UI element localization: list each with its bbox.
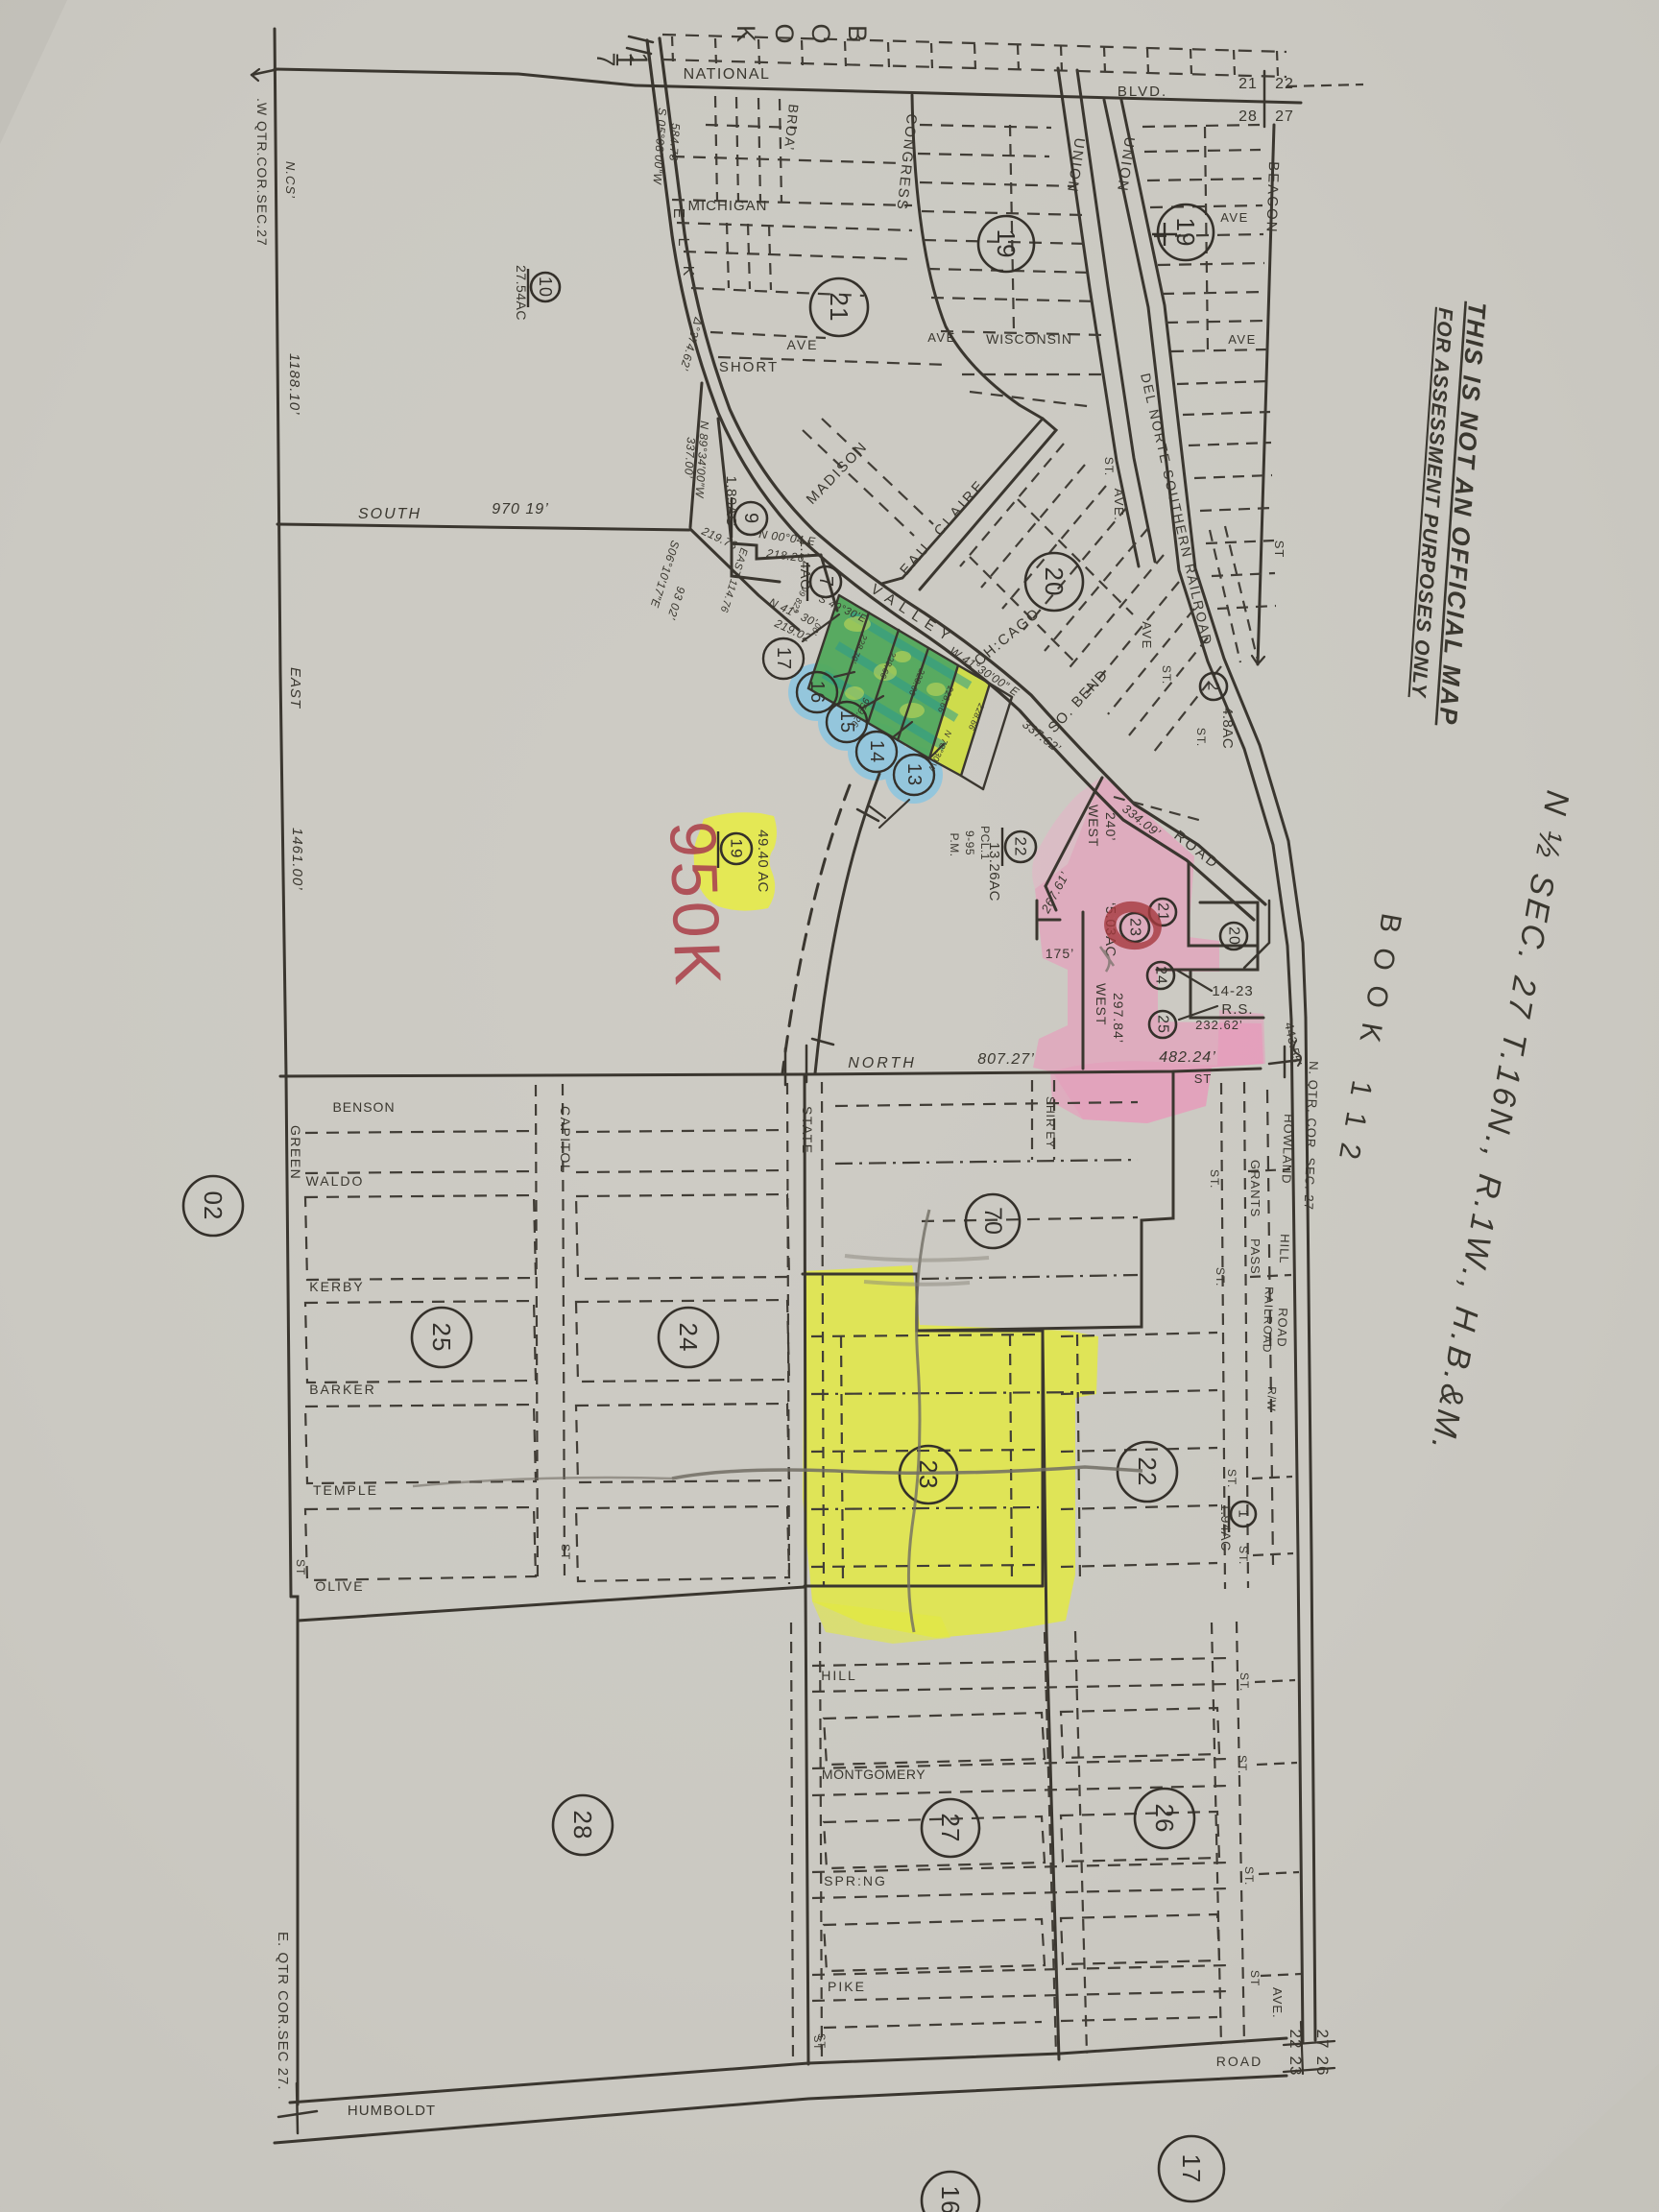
svg-text:ROAD: ROAD <box>1216 2054 1262 2069</box>
svg-text:AVE: AVE <box>1220 210 1249 225</box>
svg-text:ST.: ST. <box>1242 1866 1256 1886</box>
svg-text:1461.00’: 1461.00’ <box>289 828 305 891</box>
svg-text:AVE.: AVE. <box>1270 1987 1285 2019</box>
svg-text:BEACON: BEACON <box>1262 161 1282 234</box>
svg-text:ST: ST <box>1272 541 1286 559</box>
svg-text:17: 17 <box>773 647 794 670</box>
svg-text:R.S.: R.S. <box>1221 1001 1253 1018</box>
svg-text:970 19’: 970 19’ <box>492 501 549 517</box>
svg-text:27.54AC: 27.54AC <box>514 265 529 321</box>
svg-text:SHIR’EY: SHIR’EY <box>1044 1096 1057 1148</box>
svg-text:N.CS’: N.CS’ <box>283 161 298 199</box>
svg-text:13: 13 <box>903 763 925 786</box>
svg-text:1.89AC: 1.89AC <box>723 475 739 526</box>
svg-text:ST.: ST. <box>1225 1469 1238 1488</box>
svg-text:SOUTH: SOUTH <box>358 506 421 522</box>
svg-text:1188.10’: 1188.10’ <box>286 353 302 415</box>
svg-text:20: 20 <box>1226 926 1242 946</box>
svg-text:PIKE: PIKE <box>828 1979 866 1994</box>
svg-text:HOWLAND: HOWLAND <box>1279 1114 1296 1185</box>
svg-text:4.8AC: 4.8AC <box>1219 707 1236 749</box>
svg-text:950K: 950K <box>656 820 734 990</box>
svg-text:9-95: 9-95 <box>963 830 976 855</box>
svg-text:28: 28 <box>568 1811 597 1840</box>
svg-text:02: 02 <box>199 1191 228 1221</box>
svg-text:175’: 175’ <box>1046 946 1074 961</box>
svg-text:E: E <box>670 208 686 219</box>
svg-text:WISCONSIN: WISCONSIN <box>986 331 1072 347</box>
svg-text:14: 14 <box>866 740 887 763</box>
svg-text:B: B <box>843 25 872 42</box>
svg-text:WALDO: WALDO <box>306 1173 365 1189</box>
svg-text:17: 17 <box>1177 2154 1206 2184</box>
svg-text:20: 20 <box>1040 567 1069 597</box>
svg-text:ST.: ST. <box>1214 1267 1227 1286</box>
svg-text:P.M.: P.M. <box>948 832 961 856</box>
svg-text:ROAD: ROAD <box>1275 1308 1290 1348</box>
svg-text:CAPITOL: CAPITOL <box>558 1106 573 1173</box>
svg-text:22: 22 <box>1275 76 1294 92</box>
svg-text:2: 2 <box>1205 682 1223 691</box>
svg-text:PCL.1: PCL.1 <box>978 826 992 860</box>
svg-text:O: O <box>806 23 835 43</box>
svg-text:GRANTS: GRANTS <box>1248 1160 1262 1217</box>
svg-text:AVE.: AVE. <box>1112 489 1126 522</box>
svg-text:27: 27 <box>936 1814 965 1843</box>
svg-text:NORTH: NORTH <box>848 1055 917 1071</box>
svg-text:22: 22 <box>1286 2030 1305 2050</box>
svg-text:R/W: R/W <box>1264 1386 1279 1412</box>
svg-text:19: 19 <box>1171 218 1200 248</box>
svg-text:297.84’: 297.84’ <box>1111 993 1126 1044</box>
svg-text:ST.: ST. <box>1236 1755 1249 1774</box>
svg-text:21: 21 <box>1238 76 1258 92</box>
svg-text:NATIONAL: NATIONAL <box>684 66 771 83</box>
svg-text:L: L <box>675 238 691 247</box>
svg-text:16: 16 <box>806 681 828 704</box>
svg-text:19: 19 <box>992 229 1021 259</box>
svg-text:E. QTR COR.SEC 27.: E. QTR COR.SEC 27. <box>275 1932 291 2091</box>
svg-text:232.62’: 232.62’ <box>1195 1018 1243 1032</box>
svg-text:HUMBOLDT: HUMBOLDT <box>348 2103 436 2119</box>
svg-text:26: 26 <box>1150 1804 1179 1834</box>
svg-text:23: 23 <box>1286 2056 1305 2077</box>
svg-text:BARKER: BARKER <box>309 1382 376 1397</box>
svg-text:ST: ST <box>811 2035 823 2051</box>
svg-text:SPR:NG: SPR:NG <box>824 1873 887 1888</box>
svg-text:EAST: EAST <box>287 667 303 709</box>
svg-text:ST.: ST. <box>1238 1672 1251 1692</box>
svg-text:BLVD.: BLVD. <box>1118 84 1167 100</box>
svg-text:27: 27 <box>1275 108 1294 125</box>
svg-text:ST.: ST. <box>1194 728 1208 747</box>
svg-text:7: 7 <box>591 52 620 66</box>
svg-text:HILL: HILL <box>821 1668 857 1683</box>
svg-text:ST: ST <box>1248 1970 1262 1986</box>
svg-text:25: 25 <box>427 1323 456 1353</box>
svg-text:BENSON: BENSON <box>332 1099 395 1115</box>
svg-text:28: 28 <box>1238 108 1258 125</box>
svg-text:482.24’: 482.24’ <box>1159 1049 1216 1066</box>
svg-text:ST.: ST. <box>1237 1546 1250 1565</box>
svg-text:AVE: AVE <box>1140 621 1154 650</box>
svg-text:25: 25 <box>1155 1015 1171 1034</box>
svg-text:26: 26 <box>1313 2056 1332 2077</box>
svg-text:K: K <box>732 25 760 42</box>
svg-text:MICHIGAN: MICHIGAN <box>688 198 768 214</box>
svg-text:AVE: AVE <box>927 330 956 345</box>
svg-text:584.78: 584.78 <box>666 123 683 162</box>
svg-text:240’: 240’ <box>1103 812 1118 841</box>
svg-text:24: 24 <box>1153 966 1169 985</box>
svg-text:KERBY: KERBY <box>309 1279 364 1294</box>
svg-text:22: 22 <box>1012 837 1030 857</box>
svg-text:AVE: AVE <box>787 337 819 352</box>
svg-text:1.94AC: 1.94AC <box>1218 1503 1234 1551</box>
svg-text:PASS: PASS <box>1248 1238 1262 1275</box>
svg-text:ST.: ST. <box>1102 457 1116 476</box>
svg-text:SHORT: SHORT <box>719 359 779 375</box>
svg-text:21: 21 <box>825 293 854 323</box>
svg-text:9: 9 <box>740 513 761 524</box>
svg-text:24: 24 <box>674 1323 703 1353</box>
svg-text:HILL: HILL <box>1277 1234 1292 1264</box>
svg-text:STATE: STATE <box>800 1106 815 1155</box>
svg-text:MONTGOMERY: MONTGOMERY <box>822 1767 926 1782</box>
svg-text:16: 16 <box>936 2186 965 2212</box>
svg-text:O: O <box>770 23 799 43</box>
svg-text:AVE: AVE <box>1228 332 1257 347</box>
svg-text:K: K <box>680 266 696 276</box>
svg-text:1: 1 <box>1236 1509 1252 1518</box>
svg-text:7: 7 <box>815 576 836 588</box>
svg-text:ST: ST <box>294 1559 307 1575</box>
svg-text:23: 23 <box>1127 918 1143 937</box>
svg-text:14-23: 14-23 <box>1212 983 1253 999</box>
svg-text:OLIVE: OLIVE <box>315 1578 364 1594</box>
svg-text:ST.: ST. <box>1160 665 1173 685</box>
svg-text:1.14AC: 1.14AC <box>797 539 813 589</box>
svg-text:807.27’: 807.27’ <box>977 1051 1035 1068</box>
svg-text:GREEN: GREEN <box>288 1125 303 1180</box>
svg-text:ST: ST <box>1194 1071 1213 1086</box>
svg-text:ST.: ST. <box>1208 1169 1221 1189</box>
svg-text:ST: ST <box>559 1544 572 1560</box>
svg-text:70: 70 <box>979 1207 1006 1236</box>
svg-text:RAILROAD: RAILROAD <box>1261 1286 1276 1354</box>
svg-text:49.40 AC: 49.40 AC <box>755 829 771 893</box>
svg-text:WEST: WEST <box>1094 983 1109 1025</box>
svg-text:WEST: WEST <box>1086 805 1101 847</box>
svg-text:TEMPLE: TEMPLE <box>313 1482 378 1498</box>
svg-text:10: 10 <box>536 276 555 298</box>
svg-text:27: 27 <box>1313 2030 1332 2050</box>
svg-text:.W QTR.COR.SEC.27: .W QTR.COR.SEC.27 <box>254 98 270 247</box>
